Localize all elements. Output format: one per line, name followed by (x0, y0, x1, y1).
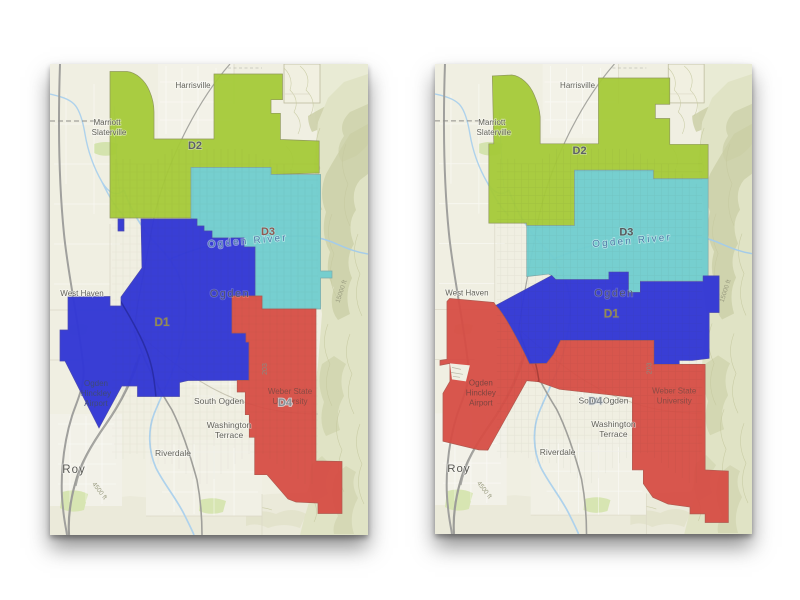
svg-text:D1: D1 (154, 315, 170, 329)
svg-text:Hinckley: Hinckley (466, 388, 496, 397)
svg-text:Ogden: Ogden (469, 378, 493, 387)
svg-text:D3: D3 (261, 226, 275, 238)
svg-text:D3: D3 (619, 227, 633, 239)
svg-text:Airport: Airport (469, 398, 493, 407)
svg-text:D2: D2 (188, 140, 202, 152)
svg-text:D4: D4 (588, 395, 603, 407)
svg-text:D4: D4 (278, 397, 293, 409)
svg-text:Ogden: Ogden (84, 379, 108, 388)
svg-text:Hinckley: Hinckley (81, 389, 111, 398)
svg-text:Airport: Airport (84, 399, 108, 408)
svg-text:D1: D1 (604, 306, 620, 320)
svg-text:D2: D2 (573, 145, 587, 157)
